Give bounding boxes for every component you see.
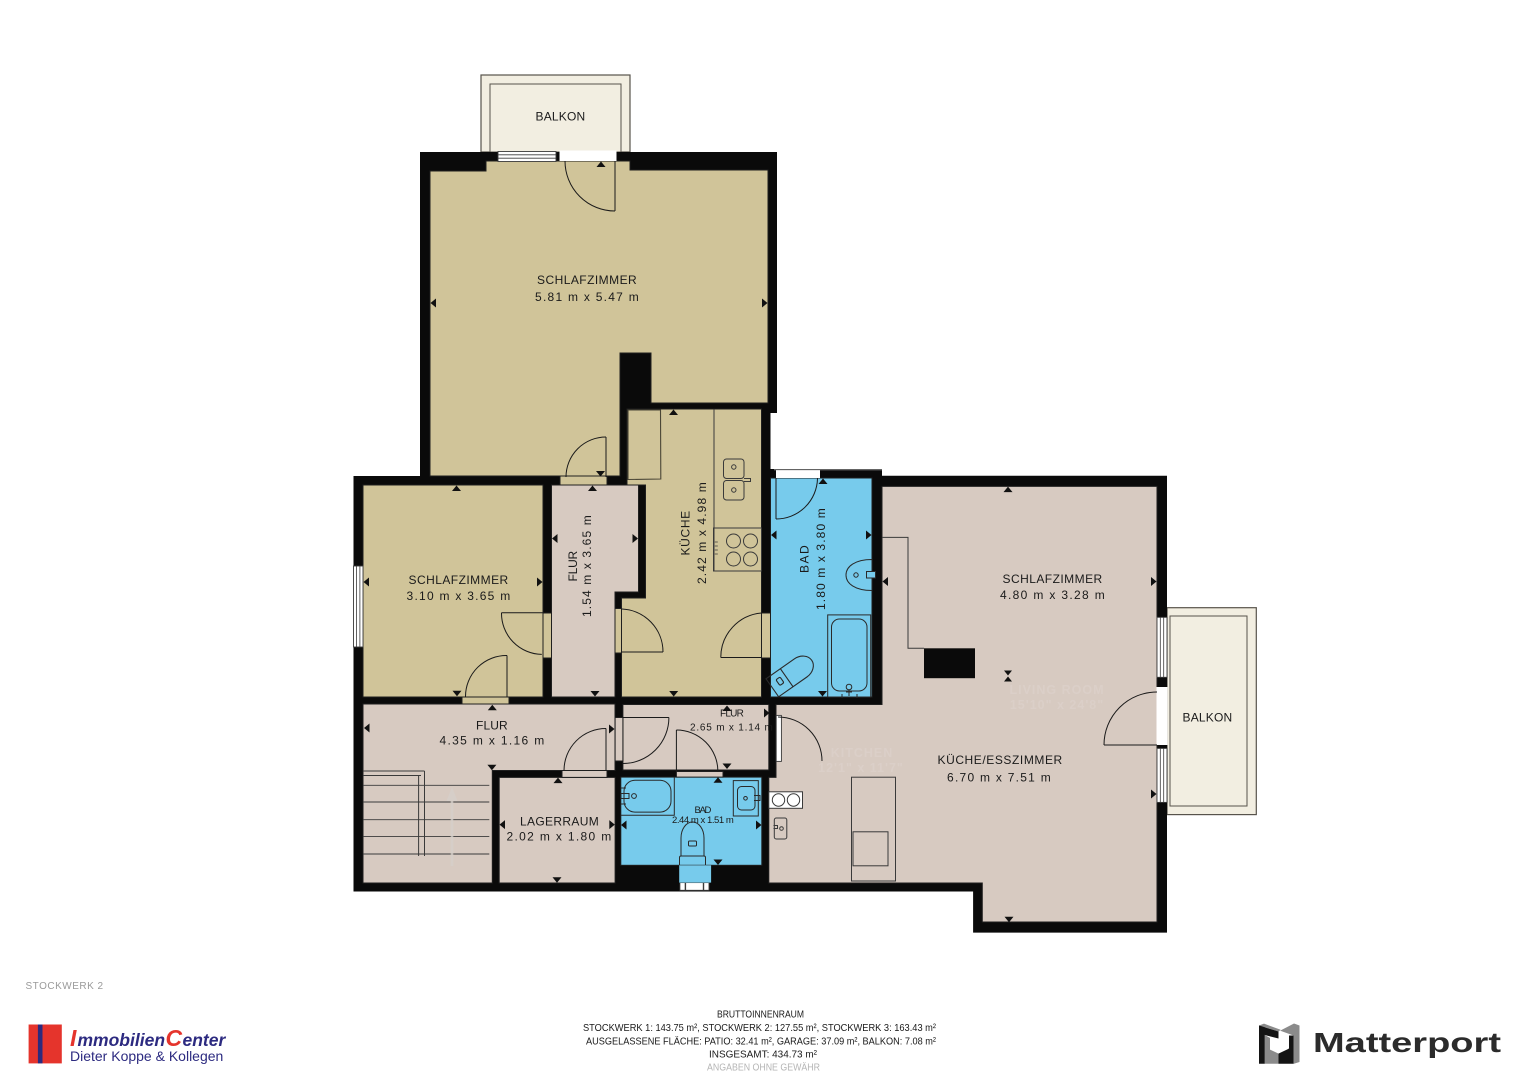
- svg-text:ANGABEN OHNE GEWÄHR: ANGABEN OHNE GEWÄHR: [707, 1062, 820, 1074]
- svg-text:STOCKWERK 1: 143.75 m², STOCKW: STOCKWERK 1: 143.75 m², STOCKWERK 2: 127…: [583, 1022, 936, 1034]
- svg-text:SCHLAFZIMMER: SCHLAFZIMMER: [1003, 572, 1103, 586]
- svg-text:KITCHEN: KITCHEN: [831, 746, 894, 760]
- svg-text:LAGERRAUM: LAGERRAUM: [520, 815, 599, 829]
- svg-text:2.02 m x 1.80 m: 2.02 m x 1.80 m: [507, 830, 612, 844]
- svg-text:BALKON: BALKON: [1183, 711, 1233, 725]
- svg-text:LIVING ROOM: LIVING ROOM: [1009, 683, 1104, 697]
- svg-text:BALKON: BALKON: [536, 110, 586, 124]
- svg-text:5.81 m x 5.47 m: 5.81 m x 5.47 m: [535, 290, 639, 304]
- svg-text:Dieter Koppe & Kollegen: Dieter Koppe & Kollegen: [70, 1048, 223, 1064]
- svg-text:4.35 m x 1.16 m: 4.35 m x 1.16 m: [440, 734, 545, 748]
- svg-text:SCHLAFZIMMER: SCHLAFZIMMER: [537, 273, 637, 287]
- svg-text:enter: enter: [183, 1030, 227, 1050]
- svg-text:2.65 m x 1.14 m: 2.65 m x 1.14 m: [690, 723, 773, 734]
- svg-text:FLUR: FLUR: [476, 719, 508, 733]
- svg-text:KÜCHE: KÜCHE: [679, 511, 693, 556]
- svg-text:INSGESAMT: 434.73 m²: INSGESAMT: 434.73 m²: [709, 1049, 817, 1061]
- svg-text:2.42 m x 4.98 m: 2.42 m x 4.98 m: [695, 482, 709, 584]
- svg-text:15'10" x 24'8": 15'10" x 24'8": [1010, 698, 1104, 712]
- svg-text:STOCKWERK 2: STOCKWERK 2: [26, 981, 104, 992]
- svg-text:Matterport: Matterport: [1313, 1027, 1501, 1058]
- svg-text:BRUTTOINNENRAUM: BRUTTOINNENRAUM: [717, 1009, 804, 1021]
- svg-text:BAD: BAD: [798, 545, 812, 573]
- svg-text:2.44 m x 1.51 m: 2.44 m x 1.51 m: [672, 815, 734, 826]
- svg-text:6.70 m x 7.51 m: 6.70 m x 7.51 m: [947, 771, 1051, 785]
- svg-text:AUSGELASSENE FLÄCHE: PATIO: 32: AUSGELASSENE FLÄCHE: PATIO: 32.41 m², GA…: [586, 1036, 936, 1048]
- svg-text:12'1" x 11'7": 12'1" x 11'7": [818, 761, 904, 775]
- svg-text:3.10 m x 3.65 m: 3.10 m x 3.65 m: [407, 589, 511, 603]
- svg-text:SCHLAFZIMMER: SCHLAFZIMMER: [409, 573, 509, 587]
- svg-text:1.80 m x 3.80 m: 1.80 m x 3.80 m: [814, 508, 828, 610]
- svg-text:FLUR: FLUR: [566, 550, 580, 581]
- svg-text:mmobilien: mmobilien: [78, 1030, 166, 1050]
- svg-text:4.80 m x 3.28 m: 4.80 m x 3.28 m: [1000, 588, 1105, 602]
- svg-text:1.54 m x 3.65 m: 1.54 m x 3.65 m: [580, 515, 594, 617]
- svg-text:KÜCHE/ESSZIMMER: KÜCHE/ESSZIMMER: [938, 753, 1063, 767]
